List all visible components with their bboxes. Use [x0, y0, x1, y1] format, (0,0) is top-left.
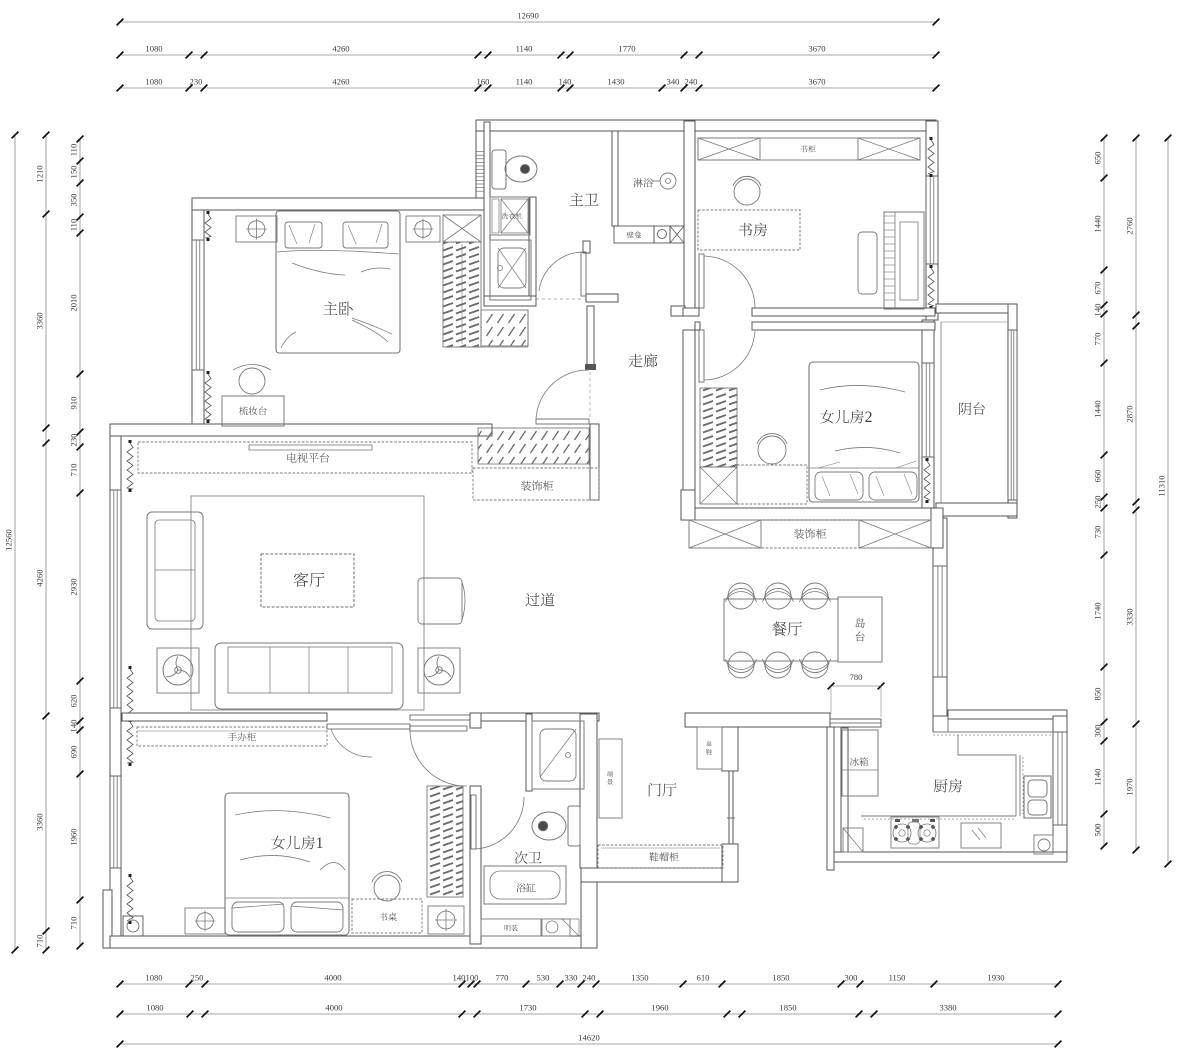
svg-text:1850: 1850	[772, 973, 789, 983]
svg-text:240: 240	[583, 973, 596, 983]
svg-text:150: 150	[69, 166, 79, 179]
svg-text:650: 650	[1093, 152, 1103, 165]
svg-text:350: 350	[69, 194, 79, 207]
svg-text:530: 530	[537, 973, 550, 983]
svg-text:4260: 4260	[332, 44, 349, 54]
svg-text:1210: 1210	[35, 165, 45, 182]
svg-text:3330: 3330	[1125, 608, 1135, 625]
svg-text:910: 910	[69, 397, 79, 410]
svg-text:500: 500	[1093, 824, 1103, 837]
svg-text:3380: 3380	[939, 1003, 956, 1013]
svg-text:1960: 1960	[69, 828, 79, 845]
svg-text:330: 330	[565, 973, 578, 983]
svg-text:340: 340	[667, 77, 680, 87]
svg-text:1850: 1850	[779, 1003, 796, 1013]
svg-text:770: 770	[1093, 333, 1103, 346]
svg-text:1140: 1140	[1093, 769, 1103, 786]
svg-text:710: 710	[69, 917, 79, 930]
svg-text:1970: 1970	[1125, 778, 1135, 795]
svg-text:3360: 3360	[35, 312, 45, 329]
svg-text:110: 110	[69, 144, 79, 157]
svg-text:780: 780	[850, 672, 863, 682]
svg-text:1140: 1140	[516, 44, 533, 54]
svg-text:1080: 1080	[146, 1003, 163, 1013]
svg-text:240: 240	[685, 77, 698, 87]
svg-text:620: 620	[69, 695, 79, 708]
svg-text:14620: 14620	[578, 1033, 599, 1043]
svg-text:11310: 11310	[1157, 475, 1167, 496]
svg-text:4260: 4260	[35, 569, 45, 586]
svg-text:140: 140	[1093, 304, 1103, 317]
svg-text:610: 610	[697, 973, 710, 983]
svg-text:3670: 3670	[808, 77, 825, 87]
svg-text:2: 2	[865, 409, 873, 426]
svg-text:3360: 3360	[35, 813, 45, 830]
svg-text:4000: 4000	[325, 1003, 342, 1013]
svg-text:2930: 2930	[69, 578, 79, 595]
svg-text:3670: 3670	[808, 44, 825, 54]
svg-text:1080: 1080	[145, 77, 162, 87]
svg-text:230: 230	[69, 434, 79, 447]
svg-text:1730: 1730	[519, 1003, 536, 1013]
svg-text:12690: 12690	[517, 11, 538, 21]
svg-text:300: 300	[845, 973, 858, 983]
svg-text:1140: 1140	[516, 77, 533, 87]
svg-text:670: 670	[1093, 282, 1103, 295]
svg-text:140: 140	[453, 973, 466, 983]
svg-text:1430: 1430	[607, 77, 624, 87]
svg-text:250: 250	[191, 973, 204, 983]
svg-text:1080: 1080	[145, 44, 162, 54]
svg-text:160: 160	[477, 77, 490, 87]
svg-text:1440: 1440	[1093, 400, 1103, 417]
svg-text:300: 300	[1093, 725, 1103, 738]
svg-text:12560: 12560	[4, 529, 14, 550]
svg-text:770: 770	[496, 973, 509, 983]
svg-text:2010: 2010	[69, 294, 79, 311]
svg-text:850: 850	[1093, 688, 1103, 701]
svg-text:1930: 1930	[987, 973, 1004, 983]
svg-text:690: 690	[69, 746, 79, 759]
svg-text:710: 710	[35, 935, 45, 948]
svg-text:1440: 1440	[1093, 215, 1103, 232]
svg-text:1080: 1080	[145, 973, 162, 983]
svg-text:4260: 4260	[332, 77, 349, 87]
svg-text:1960: 1960	[651, 1003, 668, 1013]
svg-text:140: 140	[69, 720, 79, 733]
svg-text:1740: 1740	[1093, 602, 1103, 619]
svg-text:1150: 1150	[889, 973, 906, 983]
svg-text:2760: 2760	[1125, 217, 1135, 234]
svg-text:1: 1	[316, 835, 324, 852]
svg-text:100: 100	[466, 973, 479, 983]
svg-text:710: 710	[69, 464, 79, 477]
svg-text:4000: 4000	[324, 973, 341, 983]
svg-text:2870: 2870	[1125, 405, 1135, 422]
svg-text:660: 660	[1093, 470, 1103, 483]
svg-text:140: 140	[559, 77, 572, 87]
svg-text:1350: 1350	[631, 973, 648, 983]
svg-text:230: 230	[190, 77, 203, 87]
svg-text:730: 730	[1093, 526, 1103, 539]
svg-text:250: 250	[1093, 496, 1103, 509]
svg-text:110: 110	[69, 219, 79, 232]
svg-text:1770: 1770	[618, 44, 635, 54]
